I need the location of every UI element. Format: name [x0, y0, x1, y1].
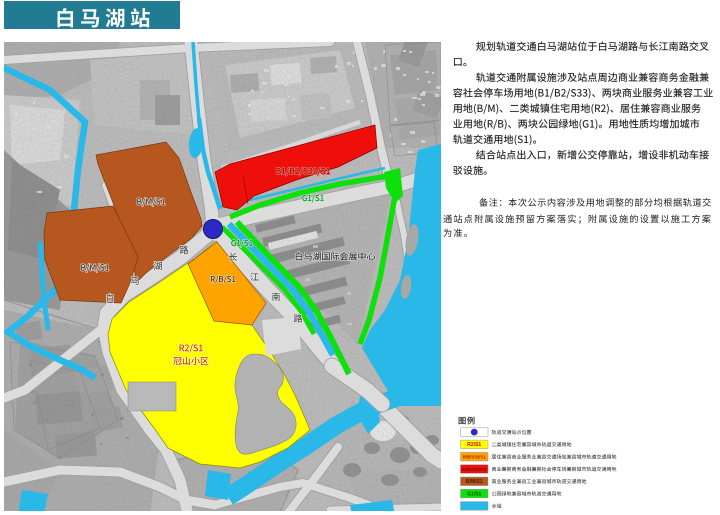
svg-text:R/B/S33/S1: R/B/S33/S1	[463, 454, 487, 459]
svg-text:G1/S1: G1/S1	[467, 491, 481, 497]
svg-text:B/M/S1: B/M/S1	[466, 479, 483, 485]
svg-text:R2/S1: R2/S1	[467, 442, 481, 448]
svg-text:B1/B2/S33/S1: B1/B2/S33/S1	[461, 467, 487, 472]
